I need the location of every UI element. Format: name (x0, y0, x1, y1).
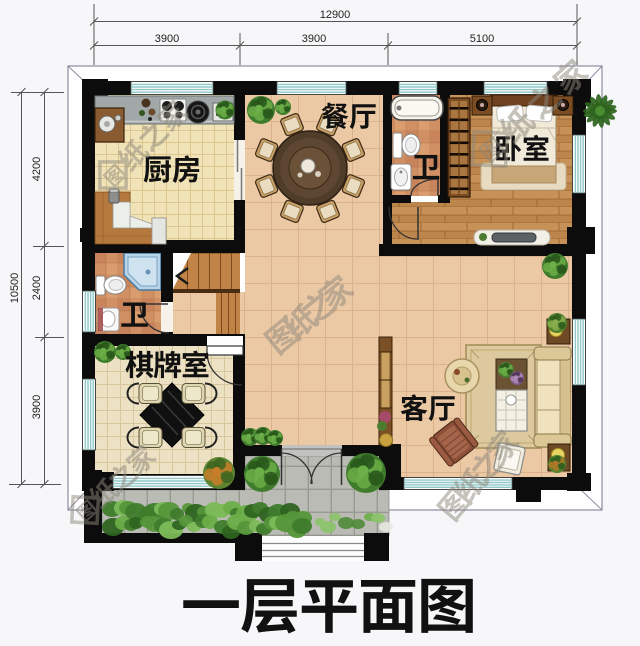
svg-text:2400: 2400 (31, 276, 43, 300)
svg-text:5100: 5100 (470, 33, 494, 45)
svg-text:12900: 12900 (320, 9, 351, 21)
svg-text:10500: 10500 (9, 273, 21, 304)
svg-text:3900: 3900 (155, 33, 179, 45)
svg-text:3900: 3900 (302, 33, 326, 45)
svg-text:3900: 3900 (31, 395, 43, 419)
svg-text:4200: 4200 (31, 157, 43, 181)
